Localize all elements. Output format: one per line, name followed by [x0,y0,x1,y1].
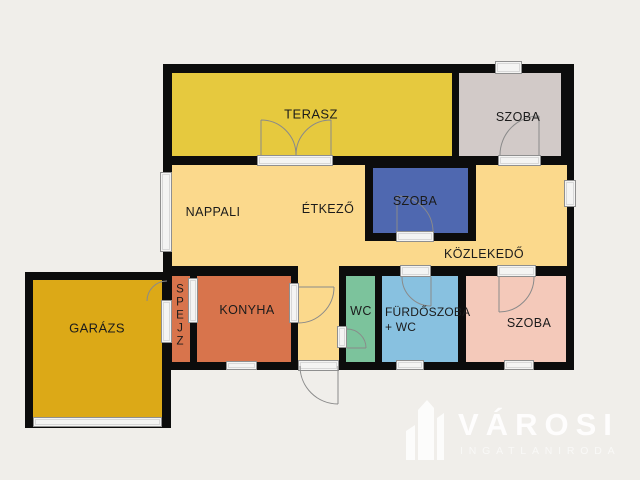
label-garazs: GARÁZS [69,321,125,336]
nappali-window [160,172,172,252]
label-furdoszoba-line2: + WC [385,320,470,335]
szoba-top-door-opening [498,155,541,166]
label-szoba-middle: SZOBA [393,194,437,208]
watermark-buildings-icon [406,400,450,463]
szoba-bottom-door-opening [497,265,536,277]
spejz-door-opening [188,278,198,323]
konyha-door-opening [289,283,299,323]
garage-door [33,417,162,427]
watermark-brand: VÁROSI [458,407,619,443]
terasz-double-door-opening [257,155,333,166]
szoba-bottom-window [504,360,534,370]
room-garazs [33,280,162,419]
room-konyha [197,276,291,362]
room-hall-strip [298,266,339,362]
label-konyha: KONYHA [219,303,274,317]
label-etkezo: ÉTKEZŐ [302,202,354,216]
label-kozlekedo: KÖZLEKEDŐ [444,247,524,261]
label-szoba-bottom: SZOBA [507,316,551,330]
furdoszoba-door-opening [400,265,431,277]
floor-plan: TERASZ SZOBA NAPPALI ÉTKEZŐ SZOBA KÖZLEK… [0,0,640,480]
label-terasz: TERASZ [284,107,338,122]
label-spejz: SPEJZ [174,284,186,349]
entry-door-swing [300,366,338,404]
watermark-subtitle: INGATLANIRODA [460,445,620,457]
label-nappali: NAPPALI [186,205,241,219]
room-wc [346,276,375,362]
wc-door-opening [337,326,347,348]
entry-door-opening [298,360,339,371]
label-furdoszoba-line1: FÜRDŐSZOBA [385,305,470,320]
garage-side-door-opening [161,300,172,343]
kozlekedo-window [564,180,576,207]
label-wc: WC [350,304,372,318]
label-szoba-top: SZOBA [496,110,540,124]
furdoszoba-window [396,360,424,370]
label-furdoszoba: FÜRDŐSZOBA + WC [385,305,470,335]
szoba-top-window [495,61,522,74]
konyha-window [226,361,257,370]
szoba-middle-door-opening [396,231,434,242]
